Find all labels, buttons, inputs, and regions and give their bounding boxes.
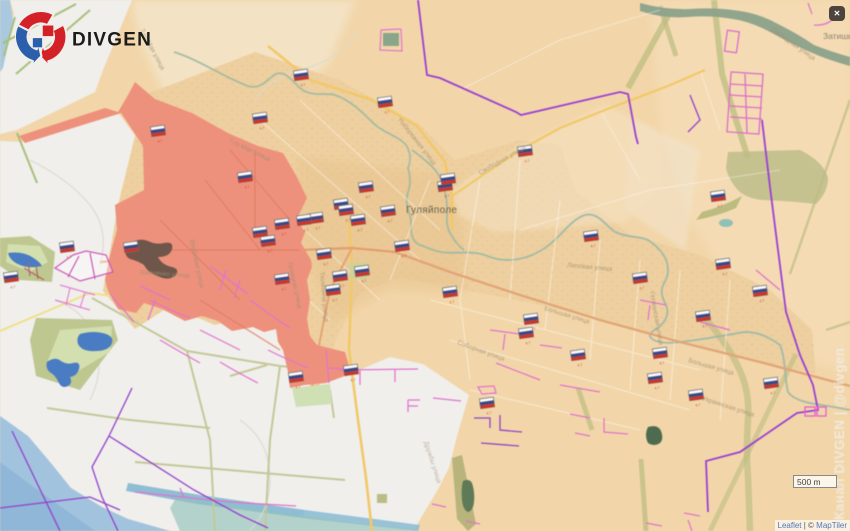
svg-text:4.7: 4.7 xyxy=(281,232,287,237)
svg-text:4.7: 4.7 xyxy=(525,341,531,346)
svg-text:4.7: 4.7 xyxy=(300,83,306,88)
svg-text:4.7: 4.7 xyxy=(384,110,390,115)
svg-text:4.7: 4.7 xyxy=(66,255,72,260)
svg-text:4.7: 4.7 xyxy=(449,300,455,305)
svg-text:4.7: 4.7 xyxy=(401,254,407,259)
svg-text:4.7: 4.7 xyxy=(695,403,701,408)
svg-text:4.7: 4.7 xyxy=(365,195,371,200)
svg-text:4.7: 4.7 xyxy=(157,139,163,144)
svg-text:4.7: 4.7 xyxy=(303,228,309,233)
svg-text:4.7: 4.7 xyxy=(447,187,453,192)
svg-text:4.7: 4.7 xyxy=(281,287,287,292)
svg-text:4.7: 4.7 xyxy=(759,299,765,304)
svg-text:4.7: 4.7 xyxy=(654,386,660,391)
svg-text:4.7: 4.7 xyxy=(345,218,351,223)
svg-text:4.7: 4.7 xyxy=(259,126,265,131)
svg-text:4.7: 4.7 xyxy=(244,185,250,190)
svg-text:4.7: 4.7 xyxy=(295,385,301,390)
svg-text:4.7: 4.7 xyxy=(323,262,329,267)
svg-text:4.7: 4.7 xyxy=(332,298,338,303)
svg-text:4.7: 4.7 xyxy=(770,391,776,396)
svg-text:4.7: 4.7 xyxy=(486,411,492,416)
svg-text:4.7: 4.7 xyxy=(524,159,530,164)
svg-text:4.7: 4.7 xyxy=(722,272,728,277)
svg-text:Канал DIVGEN | @divgen: Канал DIVGEN | @divgen xyxy=(832,348,847,520)
svg-text:4.7: 4.7 xyxy=(130,255,136,260)
svg-text:4.7: 4.7 xyxy=(267,249,273,254)
svg-text:DIVGEN: DIVGEN xyxy=(72,30,152,51)
svg-text:4.7: 4.7 xyxy=(10,285,16,290)
svg-text:4.7: 4.7 xyxy=(659,361,665,366)
svg-text:Гуляйполе: Гуляйполе xyxy=(406,205,457,216)
svg-text:4.7: 4.7 xyxy=(702,324,708,329)
svg-text:4.7: 4.7 xyxy=(590,244,596,249)
svg-text:4.7: 4.7 xyxy=(361,279,367,284)
svg-text:4.7: 4.7 xyxy=(717,204,723,209)
svg-text:4.7: 4.7 xyxy=(315,226,321,231)
svg-text:4.7: 4.7 xyxy=(350,378,356,383)
svg-text:Затишье: Затишье xyxy=(823,31,850,41)
svg-text:4.7: 4.7 xyxy=(577,363,583,368)
svg-text:4.7: 4.7 xyxy=(357,228,363,233)
svg-text:4.7: 4.7 xyxy=(639,286,645,291)
svg-text:4.7: 4.7 xyxy=(444,194,450,199)
svg-text:4.7: 4.7 xyxy=(387,219,393,224)
